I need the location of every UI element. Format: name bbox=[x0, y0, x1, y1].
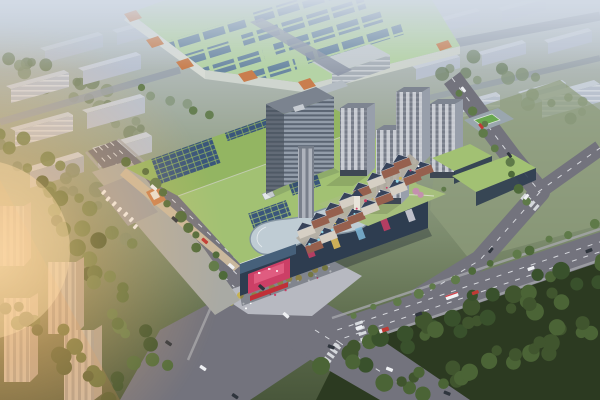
tower-e bbox=[298, 146, 314, 218]
scene-svg bbox=[0, 0, 600, 400]
tower-c bbox=[396, 87, 430, 164]
aerial-rendering-canvas: Aerial architectural rendering of a mixe… bbox=[0, 0, 600, 400]
horizon-haze bbox=[0, 0, 600, 70]
